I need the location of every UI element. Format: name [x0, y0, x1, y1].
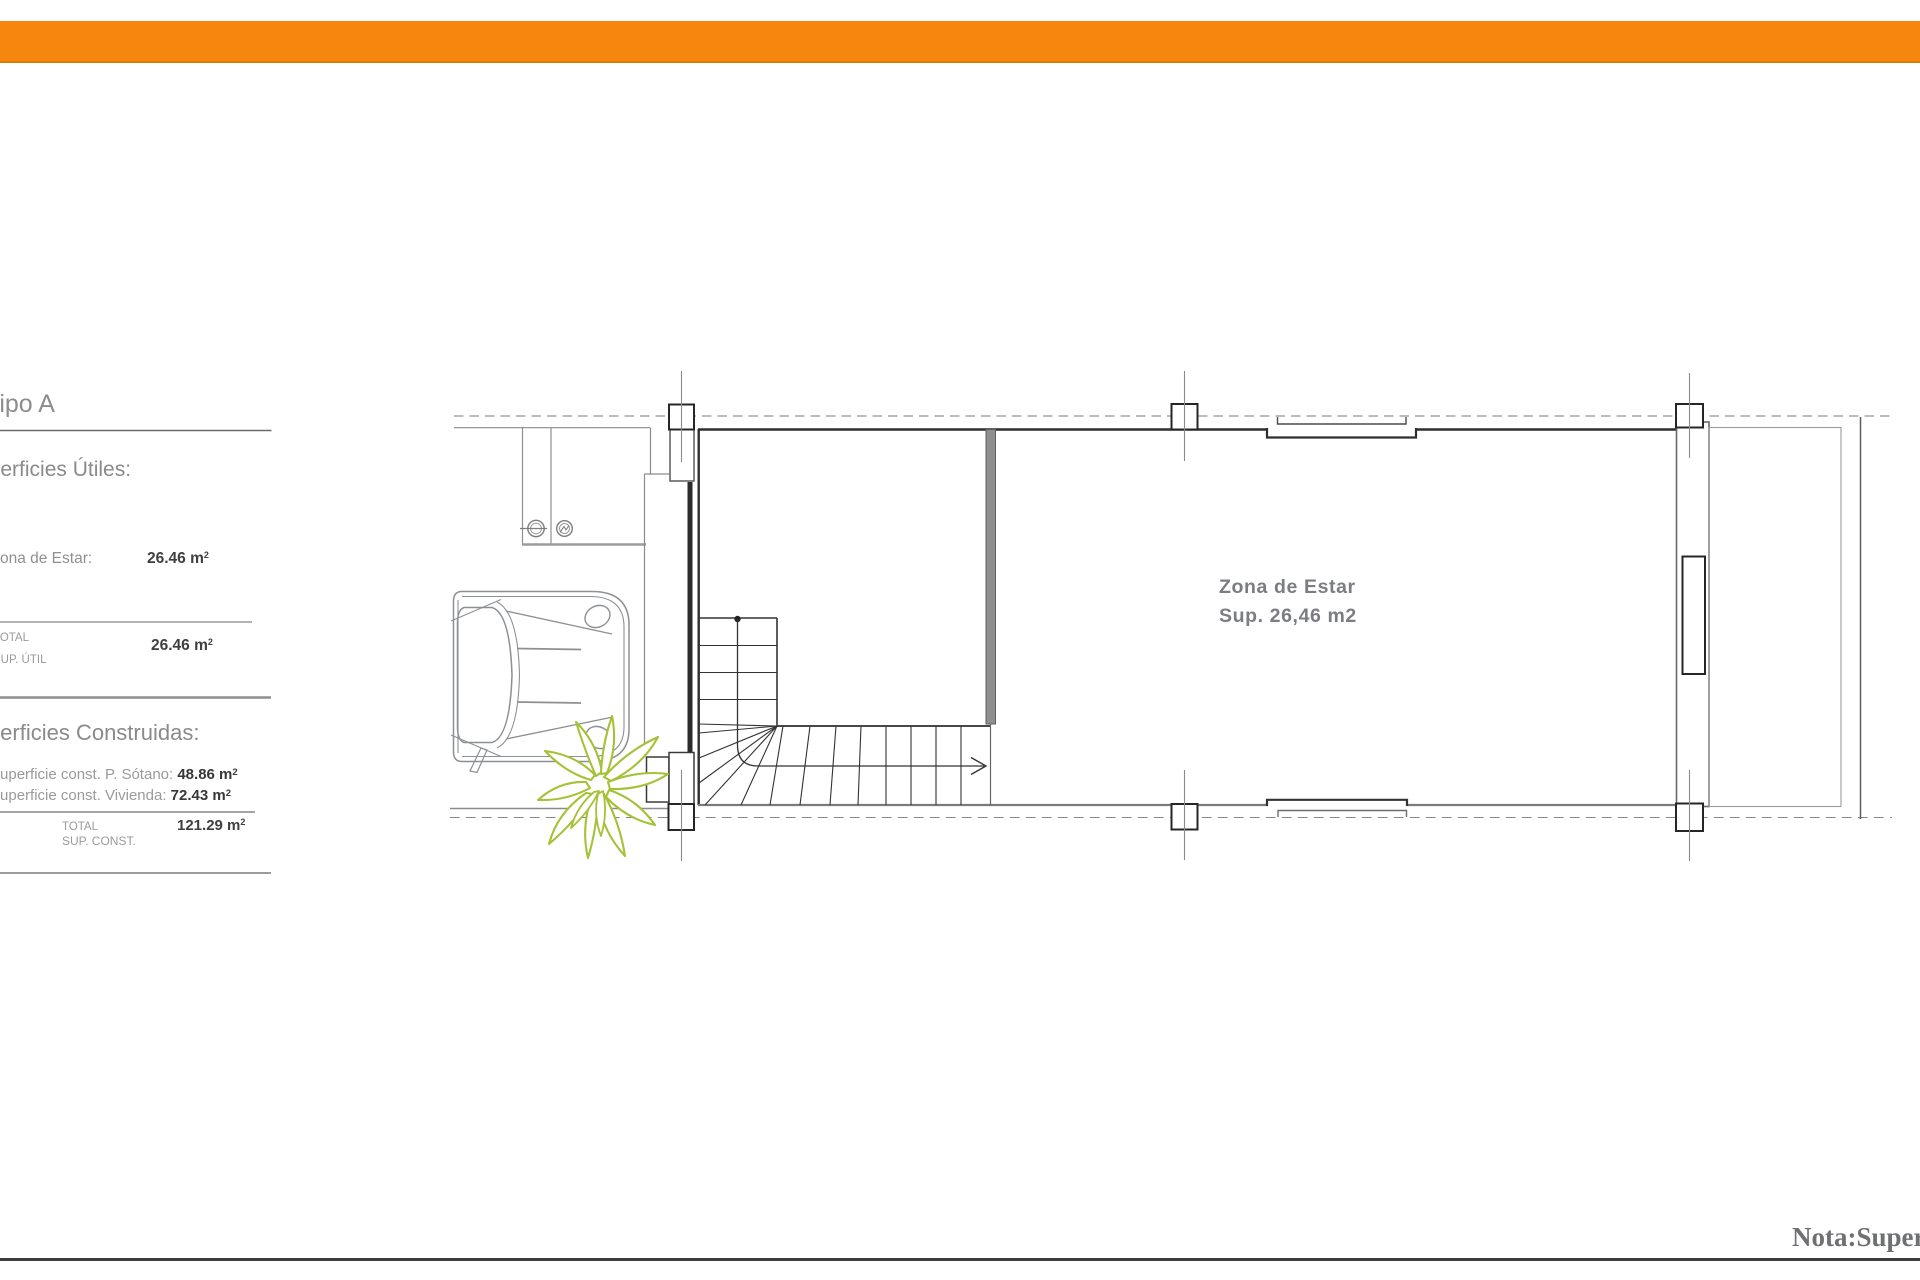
svg-text:SUP. ÚTIL: SUP. ÚTIL — [0, 653, 47, 666]
svg-text:Tipo A: Tipo A — [0, 390, 55, 418]
svg-text:26.46 m2: 26.46 m2 — [147, 550, 209, 567]
svg-text:Zona de Estar:: Zona de Estar: — [0, 550, 92, 567]
svg-text:SUP. CONST.: SUP. CONST. — [62, 834, 136, 848]
svg-text:Superficies Construidas:: Superficies Construidas: — [0, 720, 199, 745]
svg-text:Superficie const. Vivienda: 72: Superficie const. Vivienda: 72.43 m2 — [0, 787, 231, 804]
svg-text:Superficie const. P. Sótano: 4: Superficie const. P. Sótano: 48.86 m2 — [0, 766, 238, 783]
svg-text:TOTAL: TOTAL — [0, 632, 30, 644]
svg-text:26.46 m2: 26.46 m2 — [151, 637, 213, 654]
svg-text:121.29 m2: 121.29 m2 — [177, 817, 245, 834]
svg-text:TOTAL: TOTAL — [62, 821, 99, 833]
svg-text:Zona de Estar: Zona de Estar — [1219, 576, 1356, 598]
svg-text:Sup. 26,46 m2: Sup. 26,46 m2 — [1219, 605, 1357, 627]
svg-text:Superficies Útiles:: Superficies Útiles: — [0, 458, 131, 481]
